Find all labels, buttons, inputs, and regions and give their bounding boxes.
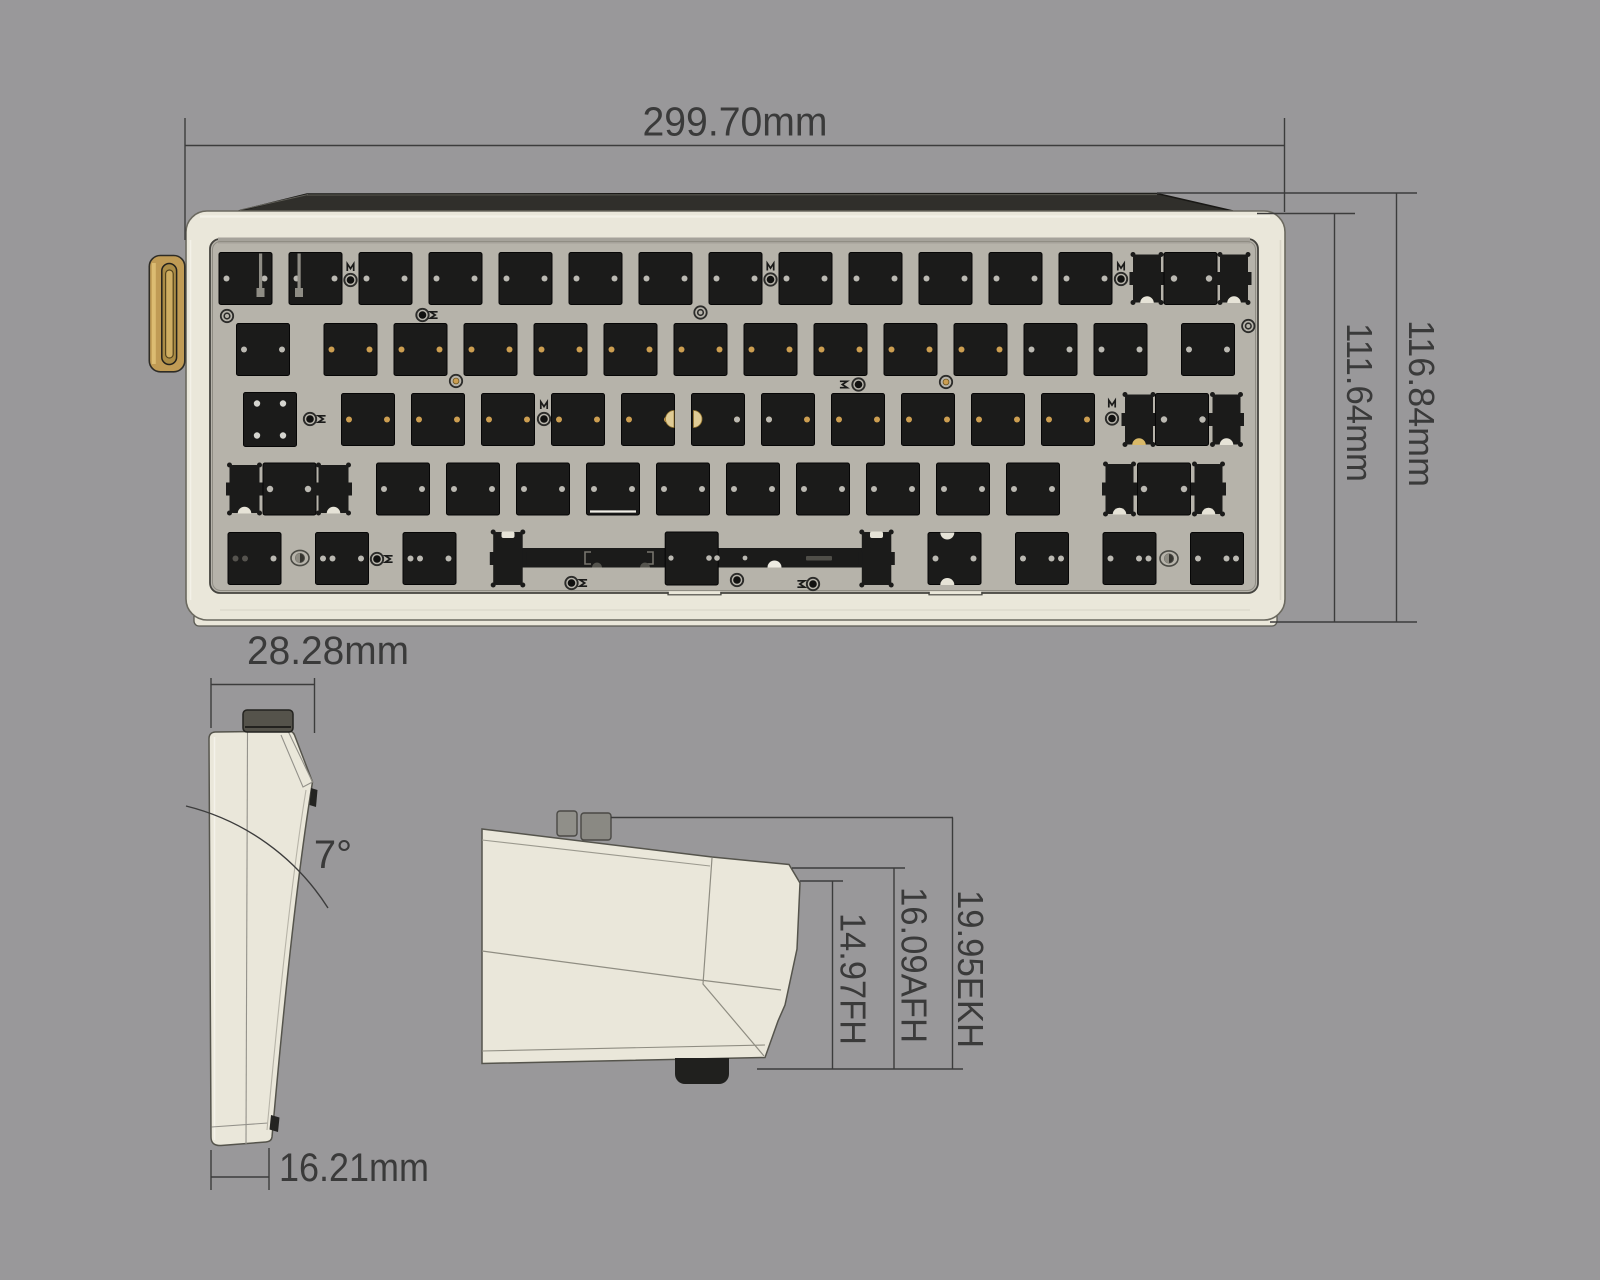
svg-text:111.64mm: 111.64mm bbox=[1339, 323, 1380, 482]
svg-text:19.95EKH: 19.95EKH bbox=[950, 890, 991, 1048]
svg-text:116.84mm: 116.84mm bbox=[1401, 320, 1442, 487]
svg-text:16.21mm: 16.21mm bbox=[279, 1146, 429, 1190]
svg-text:299.70mm: 299.70mm bbox=[643, 99, 828, 145]
svg-text:7°: 7° bbox=[314, 833, 352, 877]
svg-text:28.28mm: 28.28mm bbox=[247, 629, 409, 673]
svg-text:16.09AFH: 16.09AFH bbox=[894, 887, 935, 1043]
svg-text:14.97FH: 14.97FH bbox=[833, 913, 874, 1045]
